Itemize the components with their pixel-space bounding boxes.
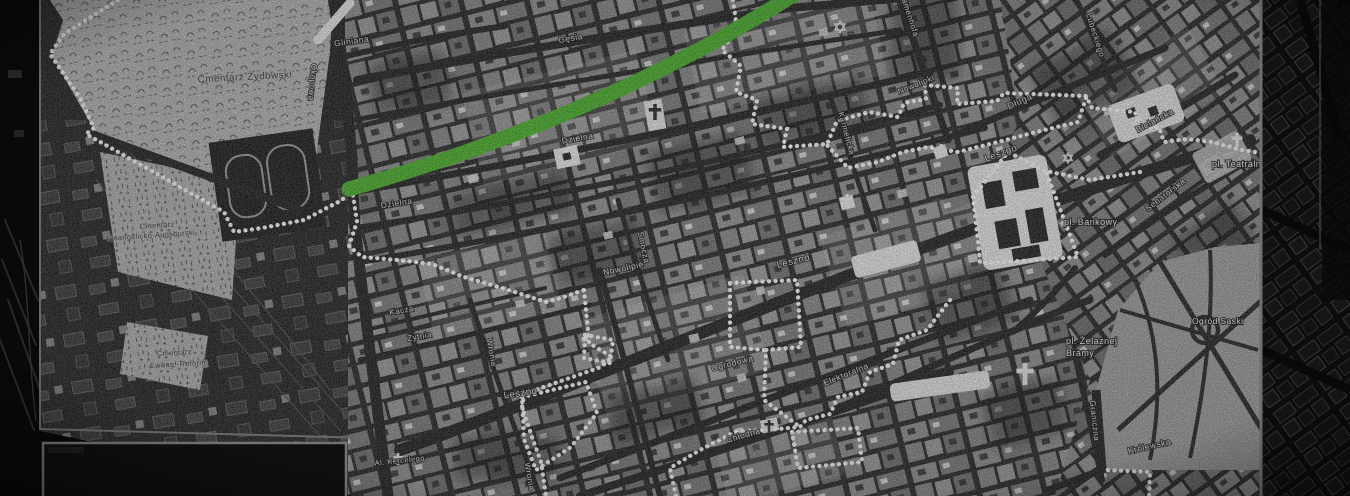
map-main-panel[interactable]: GlinianaGęsiaOkopowaZamenhofaLubeckiegoD… (40, 0, 1266, 496)
inset-panel (43, 443, 346, 496)
grain-dark (40, 0, 1262, 496)
map-canvas[interactable]: GlinianaGęsiaOkopowaZamenhofaLubeckiegoD… (0, 0, 1350, 496)
warsaw-ghetto-map-screen: GlinianaGęsiaOkopowaZamenhofaLubeckiegoD… (0, 0, 1350, 496)
off-panel-left-strip (0, 0, 40, 496)
inset-panel-chip (48, 447, 84, 453)
off-panel-right-zone (1262, 0, 1350, 496)
